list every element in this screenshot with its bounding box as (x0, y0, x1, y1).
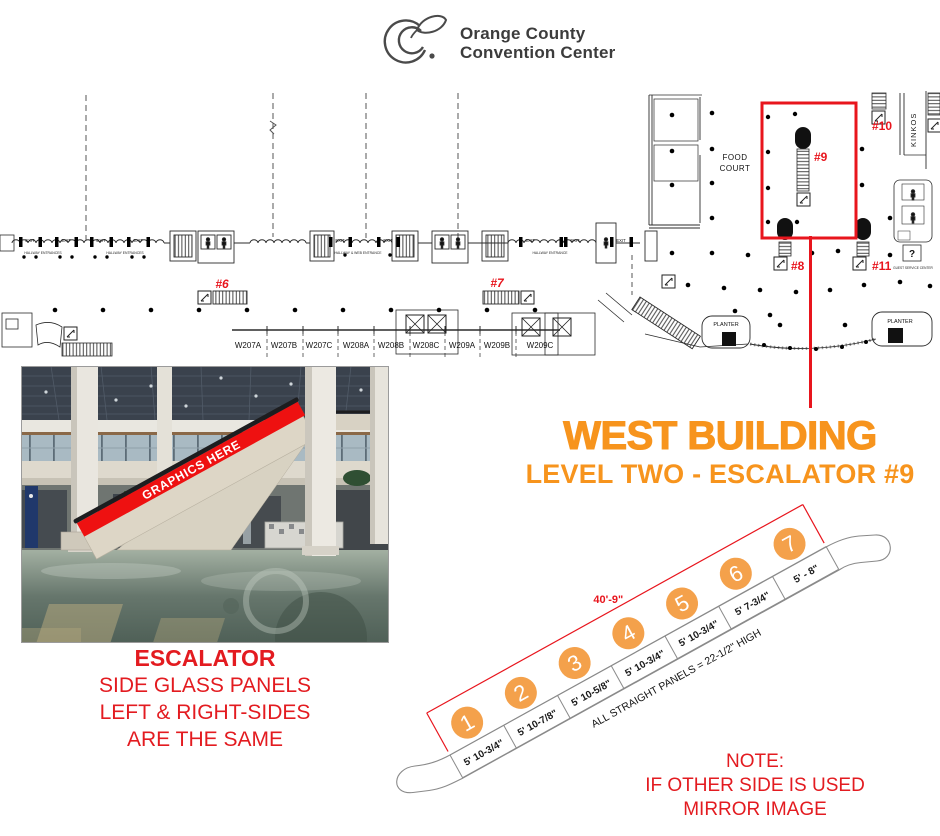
tag-6: #6 (215, 277, 229, 291)
svg-text:5' 10-5/8": 5' 10-5/8" (570, 678, 614, 709)
svg-text:5' 10-3/4": 5' 10-3/4" (677, 619, 721, 650)
panel-width: 5' 10-3/4" (462, 738, 506, 769)
svg-text:W208C: W208C (413, 341, 440, 350)
svg-text:COURT: COURT (720, 164, 751, 173)
tag-7: #7 (490, 276, 505, 290)
tag-9: #9 (814, 150, 828, 164)
svg-text:EXIT: EXIT (61, 238, 71, 243)
svg-text:5' 10-3/4": 5' 10-3/4" (623, 648, 667, 679)
svg-text:EXIT: EXIT (335, 238, 345, 243)
signage-spec-page: Orange County Convention Center (0, 0, 940, 836)
tag-11: #11 (872, 259, 892, 273)
note-line: NOTE: (605, 750, 905, 774)
svg-text:5' 10-7/8": 5' 10-7/8" (516, 708, 560, 739)
svg-text:EXIT: EXIT (525, 238, 535, 243)
photo-caption: ESCALATOR SIDE GLASS PANELS LEFT & RIGHT… (55, 645, 355, 753)
callout-line (809, 236, 812, 408)
column-dots (22, 111, 932, 351)
escalator-photo: GRAPHICS HERE (21, 366, 389, 643)
promenade-glass-wall (750, 339, 876, 348)
svg-text:EXIT: EXIT (96, 238, 106, 243)
plan-labels: EXIT EXIT EXIT EXIT EXIT EXIT EXIT EXIT … (24, 113, 933, 350)
svg-text:W208B: W208B (378, 341, 404, 350)
planter-label-right: PLANTER (887, 319, 912, 325)
svg-text:HALLWAY ENTRANCES: HALLWAY ENTRANCES (106, 251, 144, 255)
plan-structure (0, 91, 940, 357)
floor-plan: EXIT EXIT EXIT EXIT EXIT EXIT EXIT EXIT … (0, 85, 940, 385)
escalator-9-symbol (795, 127, 811, 191)
escalator-7-symbol (483, 291, 519, 304)
svg-text:W207C: W207C (306, 341, 333, 350)
tag-8: #8 (791, 259, 805, 273)
kinkos-label: KINKOS (909, 113, 918, 147)
guest-services-label: GUEST SERVICE CENTER (893, 266, 933, 270)
orange-leaf-logo-icon (376, 12, 452, 74)
logo-line2: Convention Center (460, 43, 615, 62)
title-block: WEST BUILDING LEVEL TWO - ESCALATOR #9 (505, 416, 935, 490)
exit-label: EXIT (25, 238, 35, 243)
info-desk-label: ? (909, 249, 915, 260)
svg-text:HALLWAY ENTRANCE: HALLWAY ENTRANCE (532, 251, 568, 255)
overall-length-label: 40'-9" (593, 594, 623, 606)
room-label: W207A (235, 341, 262, 350)
svg-text:W209A: W209A (449, 341, 476, 350)
svg-text:EXIT: EXIT (570, 238, 580, 243)
logo-line1: Orange County (460, 24, 615, 43)
room-labels: W207A W207B W207C W208A W208B W208C W209… (235, 341, 554, 350)
tag-10: #10 (872, 119, 892, 133)
svg-text:EXIT: EXIT (133, 238, 143, 243)
food-court-label: FOOD COURT (720, 153, 751, 173)
svg-text:W207B: W207B (271, 341, 297, 350)
stair-modules (170, 231, 657, 261)
svg-text:HALLWAY ENTRANCES: HALLWAY ENTRANCES (24, 251, 62, 255)
caption-line: ESCALATOR (55, 645, 355, 672)
page-subtitle: LEVEL TWO - ESCALATOR #9 (505, 459, 935, 490)
svg-text:FOOD: FOOD (722, 153, 747, 162)
grid-lines (86, 93, 458, 240)
svg-text:W209B: W209B (484, 341, 510, 350)
svg-text:W208A: W208A (343, 341, 370, 350)
planters (702, 312, 932, 348)
mirror-note: NOTE: IF OTHER SIDE IS USED MIRROR IMAGE (605, 750, 905, 822)
occc-logo-text: Orange County Convention Center (460, 24, 615, 62)
svg-text:EXIT: EXIT (616, 238, 626, 243)
occc-logo: Orange County Convention Center (376, 12, 615, 74)
escalator-6-symbol (213, 291, 247, 304)
planter-label-left: PLANTER (713, 322, 738, 328)
svg-text:W209C: W209C (527, 341, 554, 350)
page-title: WEST BUILDING (505, 416, 935, 456)
svg-text:EXIT: EXIT (383, 238, 393, 243)
terrazzo-floor (21, 550, 389, 643)
svg-text:HALLWAY & WEB ENTRANCE: HALLWAY & WEB ENTRANCE (335, 251, 383, 255)
escalator-tags: #6 #7 #8 #9 #10 #11 (215, 119, 892, 291)
